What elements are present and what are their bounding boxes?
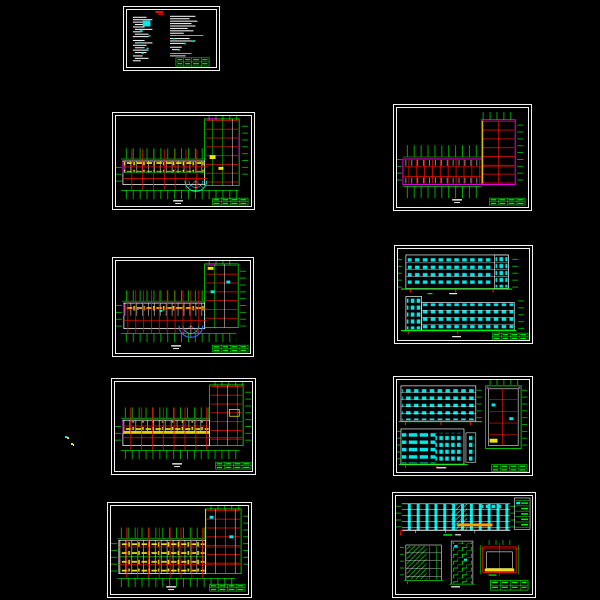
sheet-inner-border bbox=[114, 381, 253, 472]
floor-plan-drawing bbox=[397, 108, 528, 207]
floor-plan-drawing bbox=[116, 116, 251, 206]
sheet-elevations-stair-plan bbox=[393, 376, 533, 476]
sheet-inner-border bbox=[397, 248, 530, 341]
drawing-label bbox=[451, 586, 460, 587]
right-detail-column bbox=[514, 498, 530, 529]
vertical-wing bbox=[210, 382, 251, 446]
red-plan-detail bbox=[479, 540, 520, 576]
notes-drawing bbox=[127, 10, 216, 67]
sheet-inner-border bbox=[395, 495, 533, 595]
title-block bbox=[491, 580, 528, 590]
sheet-elevations-1 bbox=[394, 245, 533, 344]
title-block bbox=[490, 198, 525, 205]
drawing-label bbox=[166, 586, 176, 590]
sheet-section-details bbox=[392, 492, 536, 598]
bottom-elevation bbox=[401, 296, 524, 337]
sheet-floor-plan-1 bbox=[112, 112, 255, 210]
title-block bbox=[213, 345, 248, 352]
floor-plan-drawing bbox=[116, 261, 250, 353]
drawing-label bbox=[452, 199, 462, 203]
sheet-floor-plan-3 bbox=[112, 257, 254, 357]
drawing-label bbox=[171, 345, 181, 349]
drawing-label bbox=[172, 463, 182, 467]
vertical-wing bbox=[206, 506, 248, 573]
title-block bbox=[210, 584, 245, 591]
sheet-inner-border bbox=[115, 115, 252, 207]
vertical-wing bbox=[205, 116, 248, 185]
top-left-elevation bbox=[399, 386, 482, 425]
cad-model-space: { "canvas": { "width": 600, "height": 60… bbox=[0, 0, 600, 600]
notes-left-column bbox=[133, 17, 153, 62]
title-block bbox=[213, 198, 248, 205]
top-elevation bbox=[398, 255, 518, 294]
title-block bbox=[493, 333, 528, 340]
sheet-floor-plan-2 bbox=[393, 104, 532, 211]
drawing-label bbox=[173, 200, 183, 204]
elevations-detail-drawing bbox=[397, 380, 529, 472]
sheet-general-notes bbox=[123, 6, 220, 71]
floor-plan-drawing bbox=[115, 382, 252, 471]
notes-right-column bbox=[170, 16, 203, 51]
stair-wing-plan-detail bbox=[486, 380, 527, 449]
floor-plan-drawing bbox=[111, 506, 248, 594]
title-block bbox=[492, 465, 527, 472]
red-logo-mark bbox=[155, 11, 163, 15]
drawing-label bbox=[436, 467, 446, 468]
sheet-inner-border bbox=[115, 260, 251, 354]
sheet-inner-border bbox=[396, 379, 530, 473]
bottom-left-elevation bbox=[397, 429, 468, 468]
sheet-inner-border bbox=[110, 505, 249, 595]
long-building-section bbox=[396, 502, 515, 536]
stray-mark-yellow bbox=[67, 437, 69, 439]
stray-mark-white bbox=[73, 444, 74, 446]
stair-window-column bbox=[466, 433, 476, 462]
sheet-inner-border bbox=[396, 107, 529, 208]
title-block bbox=[170, 53, 209, 66]
sheet-floor-plan-4 bbox=[111, 378, 256, 475]
section-details-drawing bbox=[396, 496, 532, 594]
vertical-wing bbox=[205, 261, 246, 328]
stair-section-detail bbox=[449, 541, 475, 584]
sheet-floor-plan-5 bbox=[107, 502, 252, 598]
hatched-section-detail bbox=[400, 545, 443, 584]
title-block bbox=[216, 462, 251, 469]
elevations-drawing bbox=[398, 249, 529, 340]
sheet-inner-border bbox=[126, 9, 217, 68]
